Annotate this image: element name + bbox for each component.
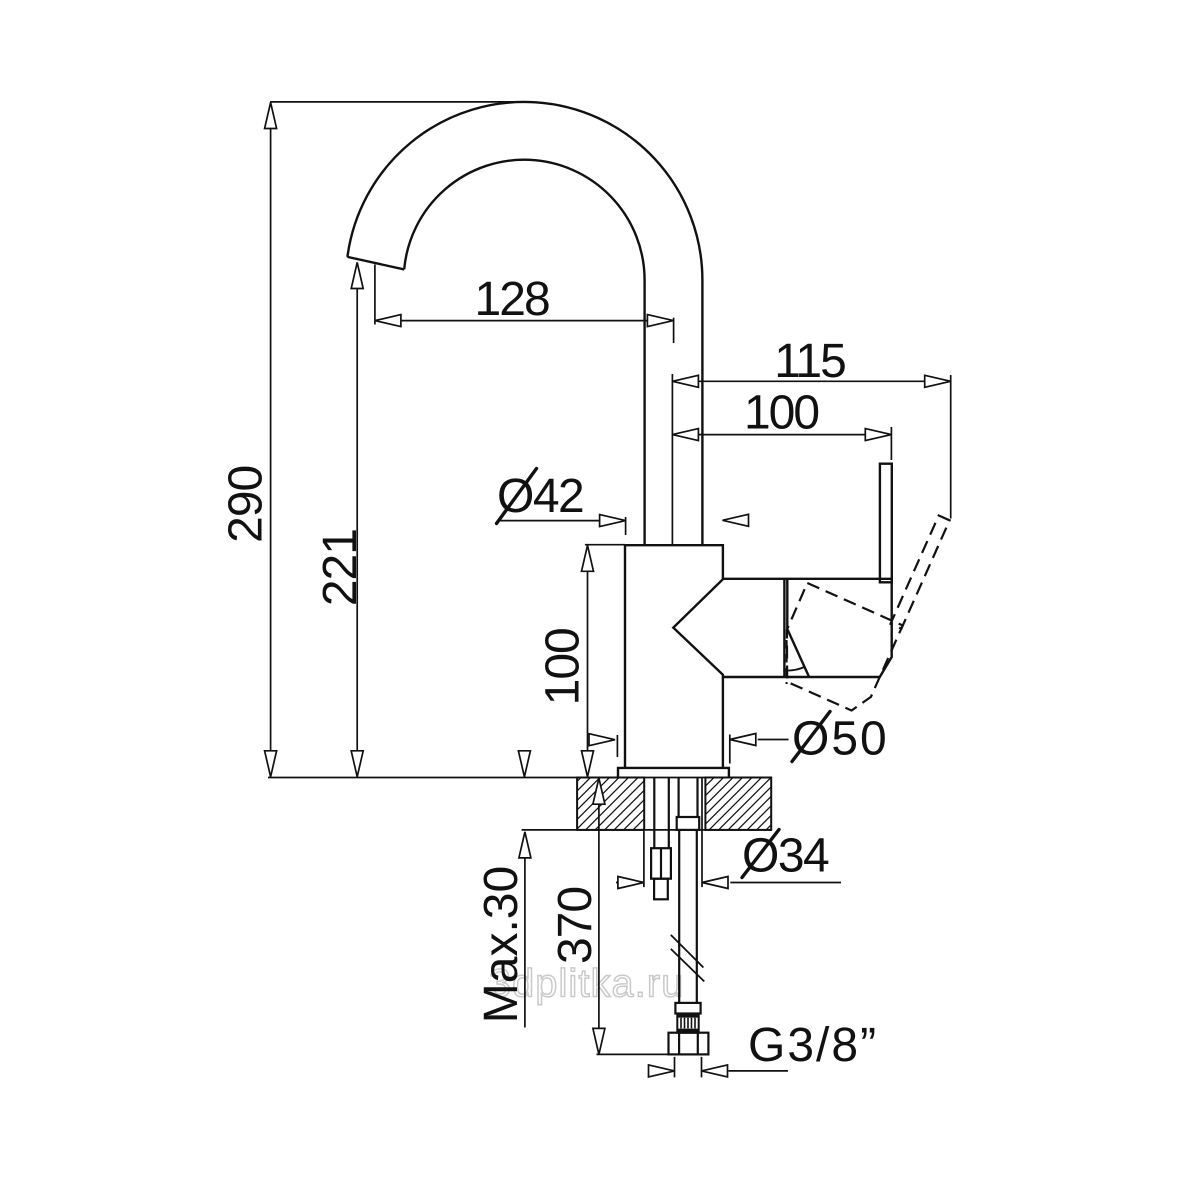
svg-text:128: 128 bbox=[475, 273, 549, 326]
svg-text:370: 370 bbox=[549, 887, 602, 964]
svg-text:115: 115 bbox=[774, 335, 845, 388]
svg-text:O50: O50 bbox=[792, 713, 889, 766]
svg-text:221: 221 bbox=[314, 529, 367, 606]
svg-text:O34: O34 bbox=[742, 830, 829, 883]
svg-text:G3/8”: G3/8” bbox=[748, 1019, 878, 1072]
svg-text:Max.30: Max.30 bbox=[475, 866, 528, 1023]
svg-text:290: 290 bbox=[220, 466, 273, 543]
svg-text:O42: O42 bbox=[497, 470, 583, 523]
svg-text:100: 100 bbox=[536, 628, 589, 705]
svg-text:100: 100 bbox=[744, 386, 818, 439]
